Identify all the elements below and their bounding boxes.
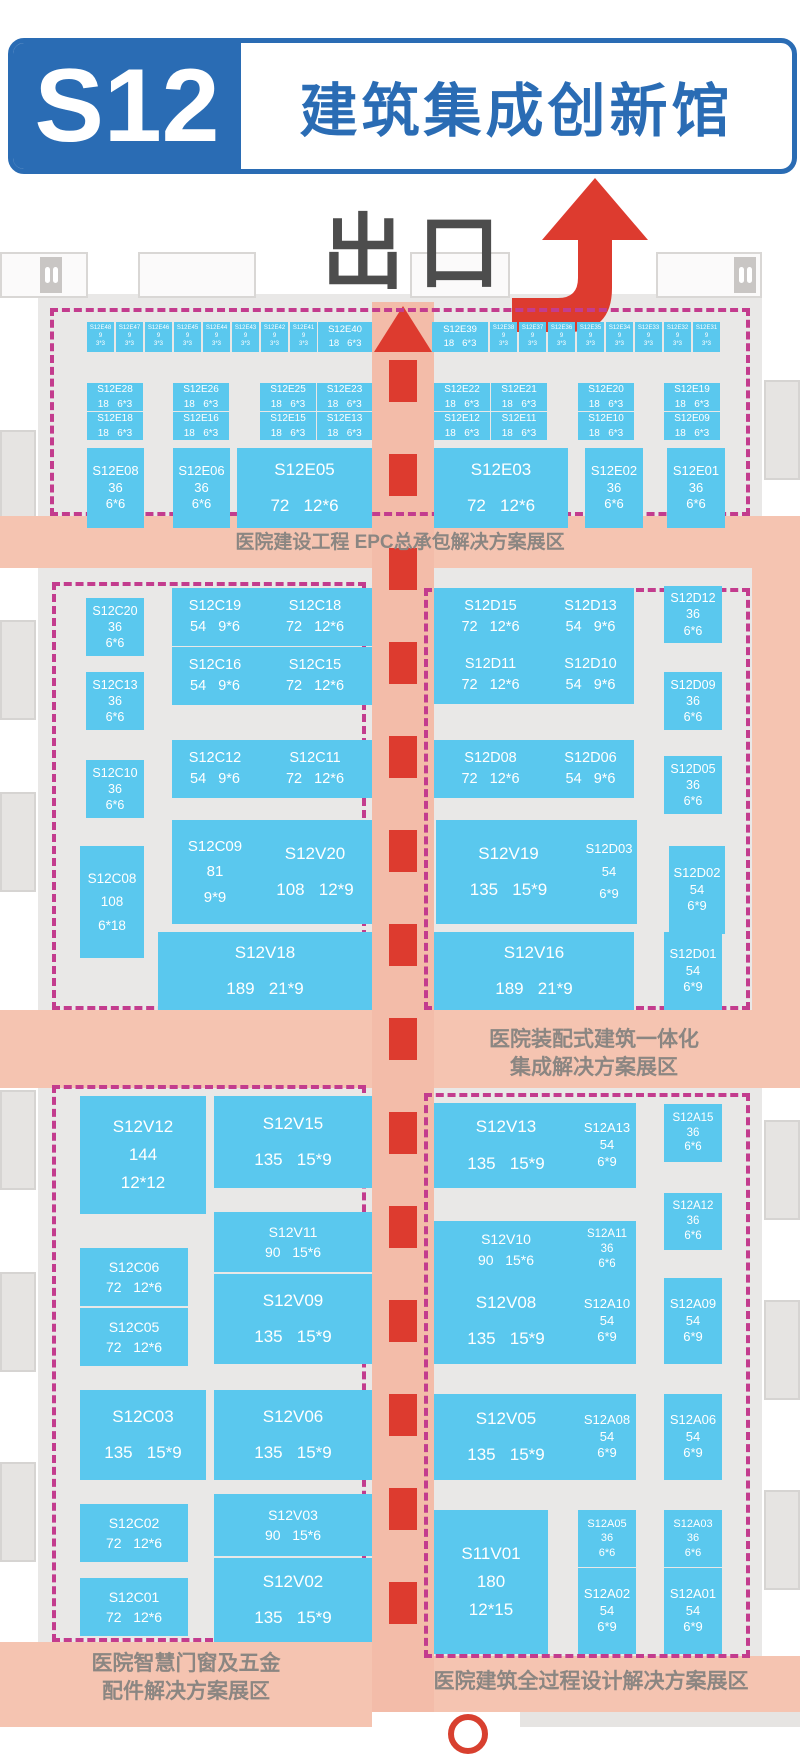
booth-S12A11: S12A11366*6 [578,1221,636,1278]
booth-S12C08: S12C081086*18 [80,846,144,958]
zone-band-right-strip [752,516,800,1088]
booth-S12V13: S12V13135 15*9 [434,1103,578,1188]
booth-S12E28: S12E2818 6*3 [87,383,143,411]
booth-S12A12: S12A12366*6 [664,1193,722,1250]
booth-S12V03: S12V0390 15*6 [214,1494,372,1556]
booth-S12E05: S12E0572 12*6 [237,448,372,528]
booth-S12E36: S12E3693*3 [548,322,575,352]
booth-S12V16: S12V16189 21*9 [434,932,634,1010]
booth-S12V08: S12V08135 15*9 [434,1278,578,1364]
booth-S12C06: S12C0672 12*6 [80,1248,188,1306]
booth-S12V05: S12V05135 15*9 [434,1394,578,1480]
booth-S12E21: S12E2118 6*3 [491,383,547,411]
booth-S12E33: S12E3393*3 [635,322,662,352]
booth-S12E47: S12E4793*3 [116,322,143,352]
booth-S12V15: S12V15135 15*9 [214,1096,372,1188]
booth-S12E22: S12E2218 6*3 [434,383,490,411]
corridor-arrow-dash [389,1112,417,1154]
booth-S12E16: S12E1618 6*3 [173,412,229,440]
booth-S12V10: S12V1090 15*6 [434,1221,578,1278]
booth-S12V18: S12V18189 21*9 [158,932,372,1010]
adjacent-hall-block [764,380,800,480]
booth-S12D09: S12D09366*6 [664,672,722,730]
top-structure [138,252,256,298]
adjacent-hall-block [0,1090,36,1190]
booth-S12D02: S12D02546*9 [669,846,725,934]
adjacent-hall-block [764,1300,800,1400]
corridor-arrow-dash [389,1300,417,1342]
corridor-arrow-dash [389,1488,417,1530]
adjacent-hall-block [764,1490,800,1590]
booth-S12C05: S12C0572 12*6 [80,1308,188,1366]
corridor-arrow-dash [389,924,417,966]
booth-S12E19: S12E1918 6*3 [664,383,720,411]
adjacent-hall-block [0,620,36,720]
booth-S12E31: S12E3193*3 [693,322,720,352]
booth-S12A06: S12A06546*9 [664,1394,722,1480]
booth-S12C20: S12C20366*6 [86,598,144,656]
booth-S12V12: S12V1214412*12 [80,1096,206,1214]
booth-S12A02: S12A02546*9 [578,1568,636,1654]
booth-S12E09: S12E0918 6*3 [664,412,720,440]
booth-S12V06: S12V06135 15*9 [214,1390,372,1480]
zone-label-design: 医院建筑全过程设计解决方案展区 [426,1668,756,1696]
booth-S12C19: S12C1954 9*6 [172,588,258,646]
booth-S12A09: S12A09546*9 [664,1278,722,1364]
booth-S12D03: S12D03546*9 [581,820,637,924]
booth-S12E25: S12E2518 6*3 [260,383,316,411]
booth-S12C10: S12C10366*6 [86,760,144,818]
corridor-arrow-dash [389,642,417,684]
booth-S11V01: S11V0118012*15 [434,1510,548,1654]
hall-code: S12 [13,43,241,169]
booth-S12A03: S12A03366*6 [664,1510,722,1567]
zone-label-epc: 医院建设工程 EPC总承包解决方案展区 [0,530,800,556]
booth-S12E40: S12E4018 6*3 [318,322,372,352]
booth-S12A10: S12A10546*9 [578,1278,636,1364]
adjacent-hall-block [0,430,36,530]
booth-S12E18: S12E1818 6*3 [87,412,143,440]
booth-S12E08: S12E08366*6 [87,448,144,528]
adjacent-hall-block [0,792,36,892]
booth-S12E38: S12E3893*3 [490,322,517,352]
booth-S12C13: S12C13366*6 [86,672,144,730]
hall-header: S12 建筑集成创新馆 [8,38,797,174]
booth-S12D10: S12D1054 9*6 [547,646,634,704]
zone-label-prefab: 医院装配式建筑一体化 集成解决方案展区 [436,1026,752,1083]
booth-S12D06: S12D0654 9*6 [547,740,634,798]
booth-S12E23: S12E2318 6*3 [317,383,372,411]
booth-S12E35: S12E3593*3 [577,322,604,352]
booth-S12E10: S12E1018 6*3 [578,412,634,440]
booth-S12A05: S12A05366*6 [578,1510,636,1567]
booth-S12D05: S12D05366*6 [664,756,722,814]
booth-S12D15: S12D1572 12*6 [434,588,547,646]
booth-S12A13: S12A13546*9 [578,1103,636,1188]
booth-S12V09: S12V09135 15*9 [214,1274,372,1364]
corridor-arrow-dash [389,830,417,872]
booth-S12D12: S12D12366*6 [664,586,722,643]
booth-S12E13: S12E1318 6*3 [317,412,372,440]
zone-label-windows: 医院智慧门窗及五金 配件解决方案展区 [0,1650,372,1707]
booth-S12E06: S12E06366*6 [173,448,230,528]
booth-S12C11: S12C1172 12*6 [258,740,372,798]
booth-S12E37: S12E3793*3 [519,322,546,352]
booth-S12E41: S12E4193*3 [290,322,317,352]
partial-logo [448,1714,488,1754]
booth-S12D11: S12D1172 12*6 [434,646,547,704]
booth-S12E42: S12E4293*3 [261,322,288,352]
corridor-arrow-dash [389,1206,417,1248]
booth-S12E01: S12E01366*6 [667,448,725,528]
booth-S12E45: S12E4593*3 [174,322,201,352]
booth-S12A08: S12A08546*9 [578,1394,636,1480]
booth-S12C12: S12C1254 9*6 [172,740,258,798]
booth-S12V19: S12V19135 15*9 [436,820,581,924]
booth-S12E39: S12E3918 6*3 [432,322,488,352]
booth-S12E15: S12E1518 6*3 [260,412,316,440]
booth-S12E43: S12E4393*3 [232,322,259,352]
booth-S12D08: S12D0872 12*6 [434,740,547,798]
booth-S12D01: S12D01546*9 [664,932,722,1010]
booth-S12C16: S12C1654 9*6 [172,647,258,705]
restroom-icon [734,257,756,293]
booth-S12A01: S12A01546*9 [664,1568,722,1654]
exit-label: 出口 [322,186,514,305]
booth-S12C02: S12C0272 12*6 [80,1504,188,1562]
booth-S12E11: S12E1118 6*3 [491,412,547,440]
adjacent-hall-block [0,1272,36,1372]
booth-S12C01: S12C0172 12*6 [80,1578,188,1636]
booth-S12A15: S12A15366*6 [664,1104,722,1162]
booth-S12D13: S12D1354 9*6 [547,588,634,646]
booth-S12E12: S12E1218 6*3 [434,412,490,440]
booth-S12E46: S12E4693*3 [145,322,172,352]
corridor-arrow-dash [389,736,417,778]
restroom-icon [40,257,62,293]
hall-name: 建筑集成创新馆 [241,43,792,169]
booth-S12C15: S12C1572 12*6 [258,647,372,705]
booth-S12E26: S12E2618 6*3 [173,383,229,411]
corridor-arrow-dash [389,1582,417,1624]
booth-S12E02: S12E02366*6 [585,448,643,528]
corridor-arrow-dash [389,1394,417,1436]
booth-S12E20: S12E2018 6*3 [578,383,634,411]
booth-S12E48: S12E4893*3 [87,322,114,352]
booth-S12E44: S12E4493*3 [203,322,230,352]
booth-S12E32: S12E3293*3 [664,322,691,352]
adjacent-hall-block [764,1120,800,1220]
booth-S12C18: S12C1872 12*6 [258,588,372,646]
corridor-arrow-dash [389,1018,417,1060]
booth-S12V11: S12V1190 15*6 [214,1212,372,1272]
adjacent-hall-block [0,1462,36,1562]
zone-band-left-cross [0,1010,372,1088]
booth-S12E34: S12E3493*3 [606,322,633,352]
booth-S12V20: S12V20108 12*9 [258,820,372,924]
booth-S12V02: S12V02135 15*9 [214,1558,372,1642]
booth-S12C09: S12C09819*9 [172,820,258,924]
booth-S12E03: S12E0372 12*6 [434,448,568,528]
booth-S12C03: S12C03135 15*9 [80,1390,206,1480]
bottom-block [520,1712,800,1727]
